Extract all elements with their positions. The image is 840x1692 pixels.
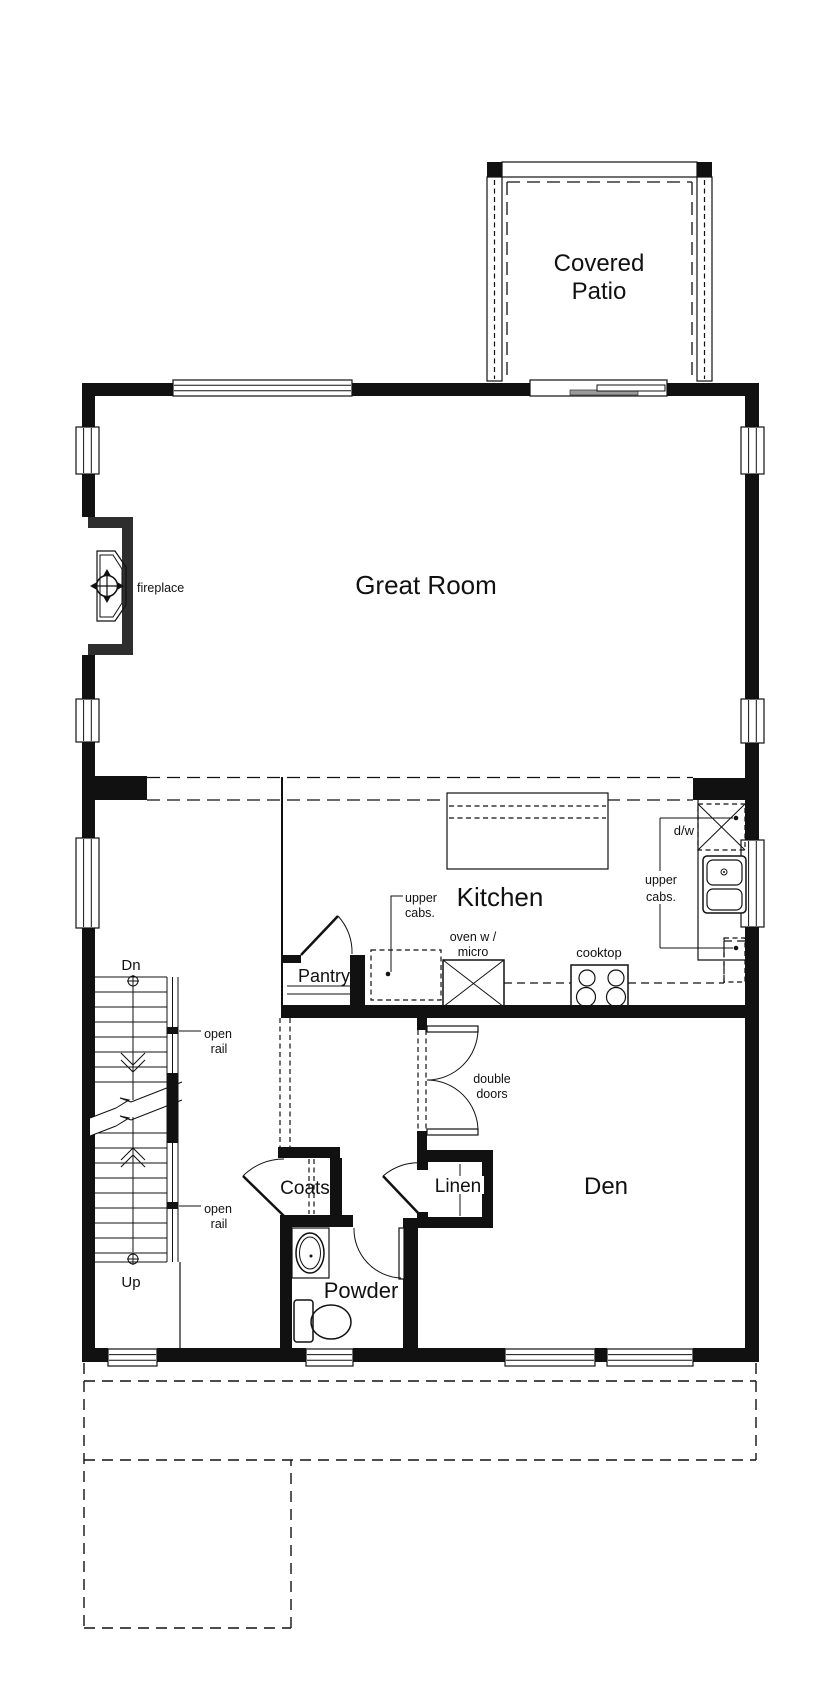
kitchen-den-wall	[281, 1005, 759, 1018]
dishwasher-label: d/w	[674, 823, 695, 838]
pantry-label: Pantry	[298, 966, 350, 986]
upper-cabs-label: upper	[645, 873, 677, 887]
dishwasher: d/w	[674, 804, 745, 850]
floor-plan-canvas: Covered Patio	[0, 0, 840, 1692]
patio-beam	[502, 162, 697, 177]
kitchen-sink	[703, 856, 746, 913]
great-room: Great Room fireplace	[88, 517, 497, 655]
porch-outline	[84, 1363, 756, 1628]
open-rail-label-2: rail	[211, 1042, 228, 1056]
upper-cabs-label-2: cabs.	[405, 906, 435, 920]
pantry-door	[301, 916, 338, 955]
open-rail-label-2: rail	[211, 1217, 228, 1231]
stairs: Dn Up open rail open rail	[90, 957, 232, 1348]
double-doors-label: double	[473, 1072, 511, 1086]
oven-micro-label-2: micro	[458, 945, 489, 959]
open-rail-label: open	[204, 1202, 232, 1216]
open-rail-label: open	[204, 1027, 232, 1041]
upper-cabs-label-2: cabs.	[646, 890, 676, 904]
coats-door	[243, 1176, 284, 1216]
pantry: Pantry	[282, 916, 365, 1017]
covered-patio: Covered Patio	[487, 162, 712, 381]
pantry-door-swing	[338, 916, 352, 954]
open-rail-callout-top: open rail	[179, 1027, 232, 1056]
kitchen: d/w upper cabs. upper cabs.	[282, 793, 746, 1017]
window	[741, 699, 764, 743]
window	[76, 699, 99, 742]
open-rail-callout-bottom: open rail	[179, 1202, 232, 1231]
oven-micro-label: oven w /	[450, 930, 497, 944]
upper-cabs-left: upper cabs.	[371, 891, 441, 1000]
coats-closet: Coats	[243, 1147, 342, 1218]
fireplace-label: fireplace	[137, 581, 184, 595]
window	[76, 838, 99, 928]
den: double doors Den	[417, 1018, 628, 1200]
double-doors-label-2: doors	[476, 1087, 507, 1101]
kitchen-island	[447, 793, 608, 869]
patio-post-left	[487, 162, 502, 177]
stairs-up-label: Up	[121, 1274, 140, 1291]
double-doors	[427, 1026, 478, 1135]
window	[173, 380, 352, 396]
powder-label: Powder	[324, 1278, 399, 1303]
sliding-door-fixed-panel	[597, 385, 665, 391]
den-label: Den	[584, 1173, 628, 1200]
window	[741, 427, 764, 474]
window	[108, 1349, 157, 1366]
covered-patio-label: Covered	[554, 250, 645, 277]
coats-door-swing	[243, 1159, 284, 1176]
powder-vanity	[292, 1228, 329, 1278]
window	[505, 1349, 595, 1366]
sliding-door	[530, 380, 667, 396]
cooktop: cooktop	[571, 945, 628, 1008]
window	[607, 1349, 693, 1366]
toilet	[294, 1300, 351, 1342]
covered-patio-label-2: Patio	[572, 278, 627, 305]
patio-post-right	[697, 162, 712, 177]
upper-cabs-label: upper	[405, 891, 437, 905]
linen-closet: Linen	[383, 1150, 493, 1228]
powder-room: Powder	[280, 1215, 418, 1362]
linen-door	[383, 1176, 421, 1216]
hall-opening	[280, 1018, 290, 1147]
great-room-label: Great Room	[355, 570, 497, 600]
window	[306, 1349, 353, 1366]
powder-door	[354, 1228, 404, 1279]
stair-rail	[167, 977, 178, 1262]
cooktop-label: cooktop	[576, 945, 622, 960]
window	[76, 427, 99, 474]
coats-label: Coats	[280, 1178, 330, 1199]
linen-label: Linen	[435, 1176, 482, 1197]
fireplace: fireplace	[88, 517, 184, 655]
fireplace-flue-icon	[90, 569, 124, 603]
oven-micro: oven w / micro	[443, 930, 504, 1007]
stairs-down-label: Dn	[121, 957, 140, 974]
kitchen-label: Kitchen	[457, 882, 544, 912]
